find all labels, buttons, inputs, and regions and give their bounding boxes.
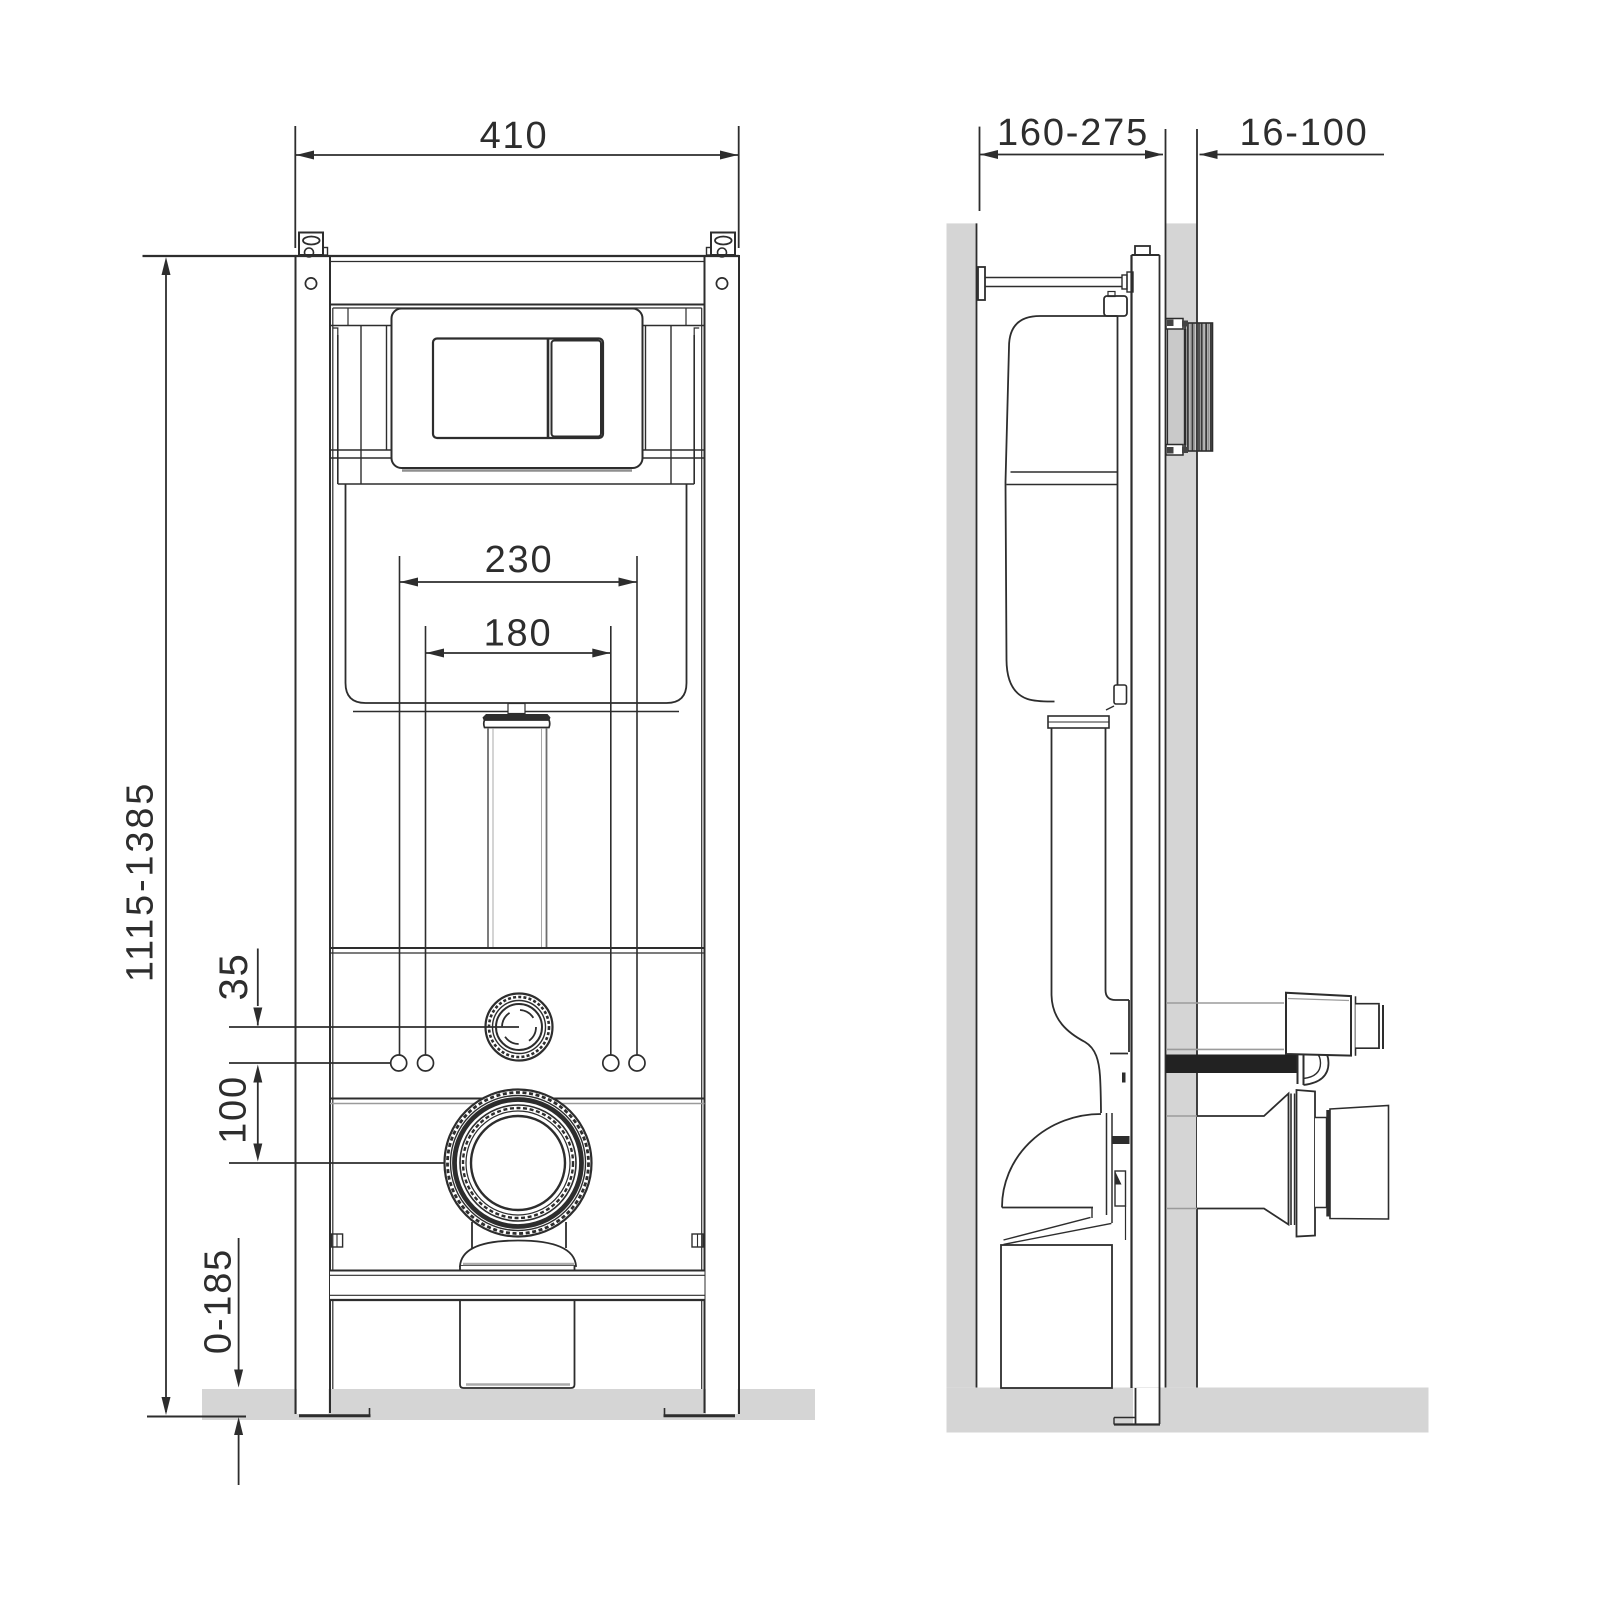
- svg-text:160-275: 160-275: [997, 112, 1149, 154]
- svg-text:1115-1385: 1115-1385: [120, 781, 162, 982]
- svg-text:410: 410: [480, 115, 549, 157]
- svg-text:230: 230: [485, 539, 554, 581]
- svg-text:35: 35: [212, 952, 256, 1000]
- svg-text:180: 180: [484, 613, 553, 655]
- svg-text:16-100: 16-100: [1239, 112, 1368, 154]
- svg-text:100: 100: [213, 1075, 255, 1144]
- svg-text:0-185: 0-185: [198, 1248, 240, 1354]
